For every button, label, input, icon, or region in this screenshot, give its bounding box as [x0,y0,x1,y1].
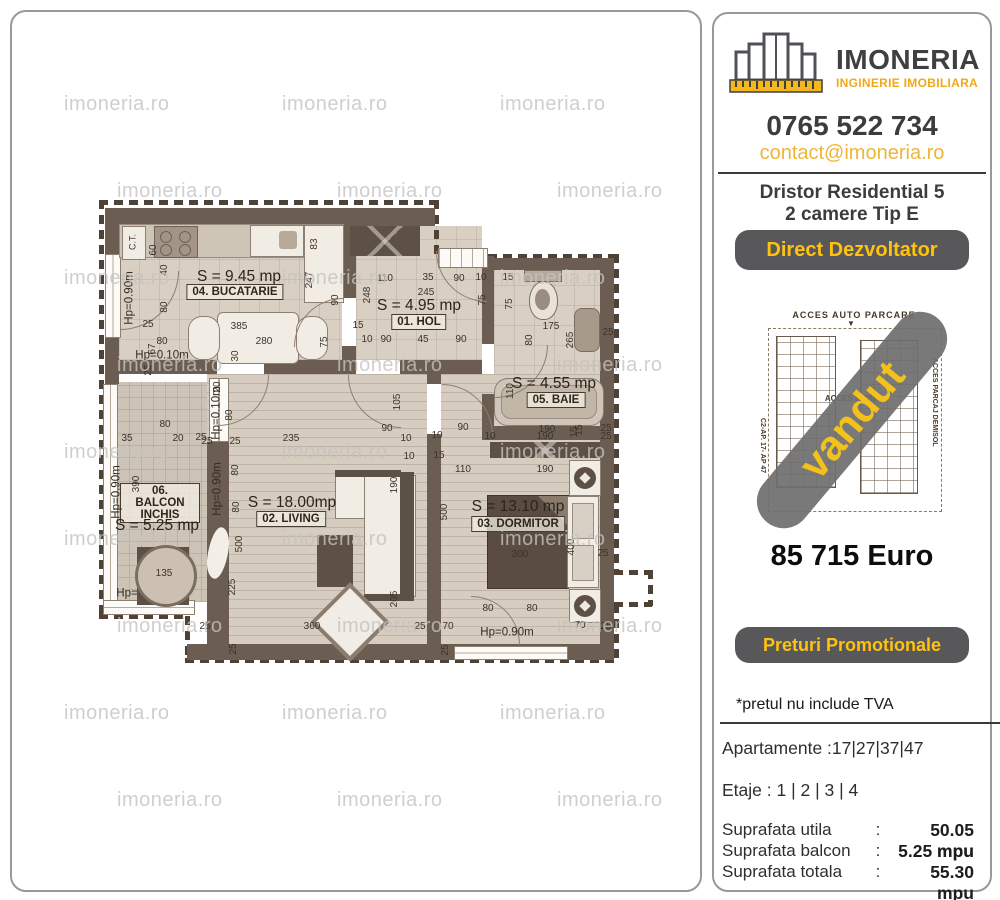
dimension-label: 90 [381,424,392,434]
hall-wardrobe [350,226,420,256]
dimension-label: 90 [380,335,391,345]
wall [488,258,614,270]
wall [119,360,217,374]
area-label: Suprafata totala [722,862,864,900]
logo-subtitle: INGINERIE IMOBILIARA [836,76,986,90]
area-value: 55.30 mpu [892,862,974,900]
wall [427,434,441,644]
bedroom-wardrobe [490,442,600,458]
dimension-label: 25 [600,432,611,442]
dimension-label: 105 [393,394,403,411]
dimension-label: 25 [199,622,210,632]
area-separator: : [864,841,892,862]
dimension-label: 40 [160,264,170,275]
dimension-label: 60 [149,244,159,255]
dimension-label: 135 [156,569,173,579]
room-name-living: 02. LIVING [256,511,326,527]
dimension-label: 10 [361,335,372,345]
dimension-label: 10 [403,452,414,462]
dimension-label: 500 [440,504,450,521]
dimension-label: 83 [310,238,320,249]
dimension-label: 30 [231,350,241,361]
dashed-contour [648,570,653,606]
nightstand [569,460,601,496]
parapet-height-label: Hp=0.10m [211,386,223,439]
phone-number[interactable]: 0765 522 734 [714,110,990,142]
dimension-label: 360 [304,622,321,632]
dimension-label: 80 [160,301,170,312]
dimension-label: 75 [505,298,515,309]
dashed-contour [99,200,435,205]
dimension-label: 385 [231,322,248,332]
wall [600,258,614,660]
window [454,646,568,660]
room-area-hol: S = 4.95 mp [377,297,461,315]
dimension-label: 265 [566,332,576,349]
sofa-backrest [400,472,414,598]
dimension-label: 25 [414,622,425,632]
dimension-label: 25 [600,622,611,632]
dimension-label: 80 [231,464,241,475]
dimension-label: 280 [256,337,273,347]
dimension-label: 10 [475,273,486,283]
dimension-label: 25 [144,364,154,375]
dimension-label: 25 [229,437,240,447]
arrow-down-icon: ▼ [847,319,855,328]
dimension-label: 80 [225,409,235,420]
dimension-label: 75 [320,336,330,347]
dimension-label: 10 [400,434,411,444]
dimension-label: 25 [602,328,613,338]
dimension-label: 15 [502,273,513,283]
room-area-dormitor: S = 13.10 mp [472,498,565,516]
floor-plan: C.T. S = 9.45 mp 04. BUCATARIE S = 4.95 … [10,10,702,892]
apartment-type: 2 camere Tip E [714,204,990,226]
parapet-height-label: Hp=0.90m [480,627,533,639]
dimension-label: 70 [442,622,453,632]
chair [188,316,220,360]
offer-card: IMONERIA INGINERIE IMOBILIARA 0765 522 7… [712,12,992,892]
dimension-label: 15 [433,451,444,461]
dimension-label: 45 [417,335,428,345]
dimension-label: 205 [390,591,400,608]
dimension-label: 190 [537,465,554,475]
imoneria-logo-icon [728,28,838,94]
dimension-label: 20 [172,434,183,444]
dimension-label: 80 [482,604,493,614]
dimension-label: 248 [363,287,373,304]
toilet [529,281,558,320]
dimension-label: 80 [232,501,242,512]
room-area-balcon: S = 5.25 mp [115,517,199,535]
dimension-label: 25 [229,643,239,654]
dimension-label: 190 [537,432,554,442]
parapet-height-label: Hp=0.90m [124,271,136,324]
tva-note: *pretul nu include TVA [720,692,1000,724]
parapet-height-label: Hp= [116,588,137,600]
bath-sink [574,308,600,352]
preturi-promotionale-button[interactable]: Preturi Promotionale [735,627,969,663]
kitchen-sink [250,225,304,257]
price: 85 715 Euro [714,540,990,573]
dimension-label: 245 [418,288,435,298]
dashed-contour [614,602,652,607]
floorplan-card: C.T. S = 9.45 mp 04. BUCATARIE S = 4.95 … [10,10,702,892]
dimension-label: 80 [526,604,537,614]
dimension-label: 400 [567,539,577,556]
dimension-label: 25 [195,433,206,443]
dimension-label: 235 [283,434,300,444]
dimension-label: 80 [525,334,535,345]
dimension-label: 75 [478,294,488,305]
dimension-label: 110 [506,383,516,399]
area-row-totala: Suprafata totala : 55.30 mpu [722,862,974,900]
dashed-contour [614,570,652,575]
divider [718,172,986,174]
dimension-label: 110 [377,274,393,284]
room-name-dormitor: 03. DORMITOR [471,516,565,532]
dimension-label: 70 [574,621,585,631]
floors-line: Etaje : 1 | 2 | 3 | 4 [722,780,858,801]
dimension-label: 10 [431,431,442,441]
dimension-label: 35 [121,434,132,444]
room-name-hol: 01. HOL [391,314,446,330]
coffee-table [317,535,353,587]
area-row-balcon: Suprafata balcon : 5.25 mpu [722,841,974,862]
dimension-label: 390 [132,476,142,493]
area-label: Suprafata balcon [722,841,864,862]
site-plan-right-label: ACCES PARCAJ DEMISOL [930,358,938,483]
dimension-label: 25 [597,549,608,559]
dashed-contour [614,254,619,572]
dimension-label: 10 [484,432,495,442]
dimension-label: 15 [352,321,363,331]
dimension-label: 90 [331,294,341,305]
parapet-height-label: Hp=0.10m [135,350,188,362]
stove [154,226,198,258]
area-value: 5.25 mpu [892,841,974,862]
room-name-baie: 05. BAIE [527,392,586,408]
parapet-height-label: Hp=0.90m [111,465,123,518]
apartments-line: Apartamente :17|27|37|47 [722,738,923,759]
dimension-label: 90 [453,274,464,284]
fridge [304,225,344,303]
dimension-label: 175 [543,322,560,332]
dimension-label: 225 [228,579,238,596]
dimension-label: 25 [441,644,451,655]
dimension-label: 90 [457,423,468,433]
window [105,254,121,338]
dimension-label: 15 [570,426,580,437]
room-name-bucatarie: 04. BUCATARIE [186,284,283,300]
dimension-label: 90 [455,335,466,345]
dimension-label: 247 [305,272,315,289]
dimension-label: 300 [512,550,529,560]
email-link[interactable]: contact@imoneria.ro [714,142,990,165]
direct-dezvoltator-button[interactable]: Direct Dezvoltator [735,230,969,270]
dimension-label: 500 [235,536,245,553]
dimension-label: 110 [455,465,471,475]
wall [400,360,482,374]
dimension-label: 25 [142,320,153,330]
project-name: Dristor Residential 5 [714,182,990,204]
dimension-label: 35 [422,273,433,283]
area-separator: : [864,862,892,900]
parapet-height-label: Hp=0.90m [212,462,224,515]
logo-title: IMONERIA [836,44,986,76]
room-area-living: S = 18.00mp [248,494,336,512]
room-area-baie: S = 4.55 mp [512,375,596,393]
page: C.T. S = 9.45 mp 04. BUCATARIE S = 4.95 … [0,0,1000,900]
ct-label: C.T. [129,234,138,250]
dashed-contour [614,604,619,660]
nightstand [569,589,601,623]
wall [427,374,441,384]
dimension-label: 80 [159,420,170,430]
dimension-label: 80 [156,337,167,347]
dimension-label: 190 [390,477,400,494]
